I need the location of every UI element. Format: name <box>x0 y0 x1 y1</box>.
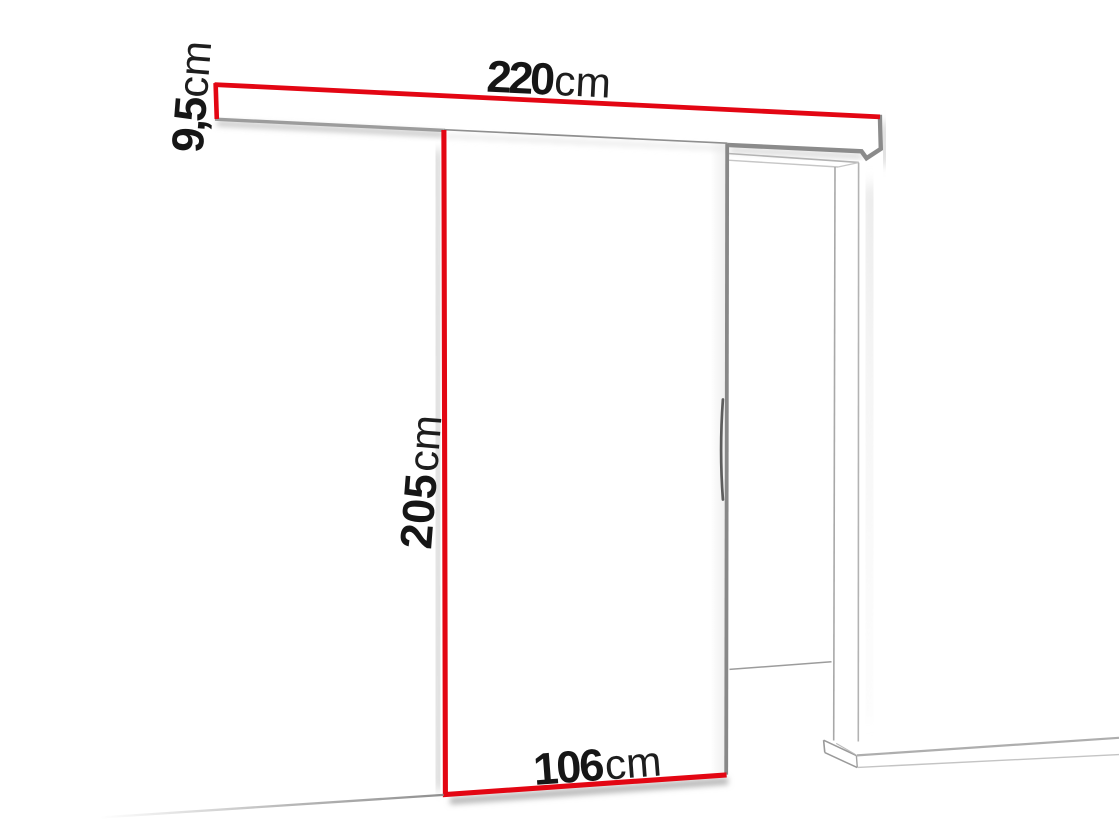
svg-text:106cm: 106cm <box>531 734 663 794</box>
svg-text:220cm: 220cm <box>486 51 613 108</box>
